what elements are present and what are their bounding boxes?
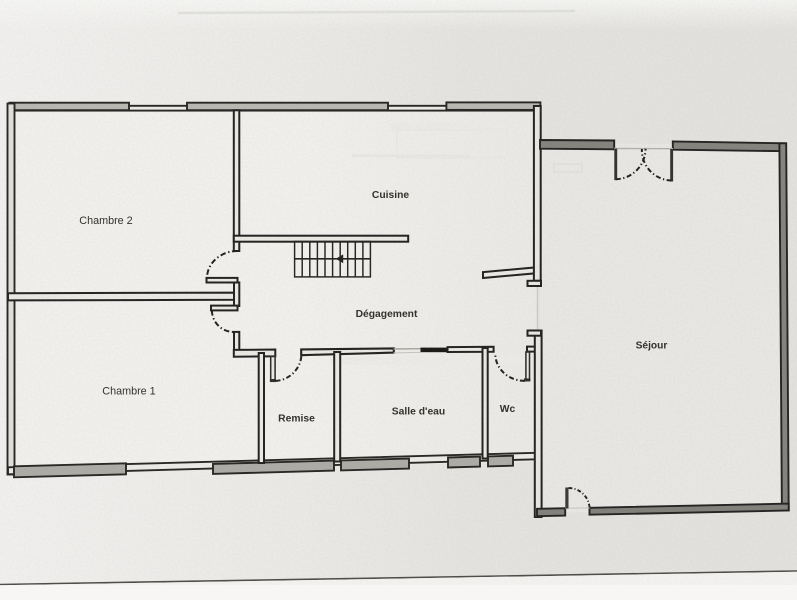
svg-text:Wc: Wc	[500, 404, 516, 415]
svg-text:Séjour: Séjour	[636, 341, 668, 352]
svg-text:Remise: Remise	[278, 414, 315, 425]
svg-text:Chambre 1: Chambre 1	[102, 386, 155, 398]
svg-text:Dégagement: Dégagement	[356, 309, 418, 320]
svg-text:Cuisine: Cuisine	[372, 190, 409, 201]
svg-text:Salle d'eau: Salle d'eau	[392, 407, 445, 418]
svg-text:Chambre 2: Chambre 2	[79, 215, 132, 227]
